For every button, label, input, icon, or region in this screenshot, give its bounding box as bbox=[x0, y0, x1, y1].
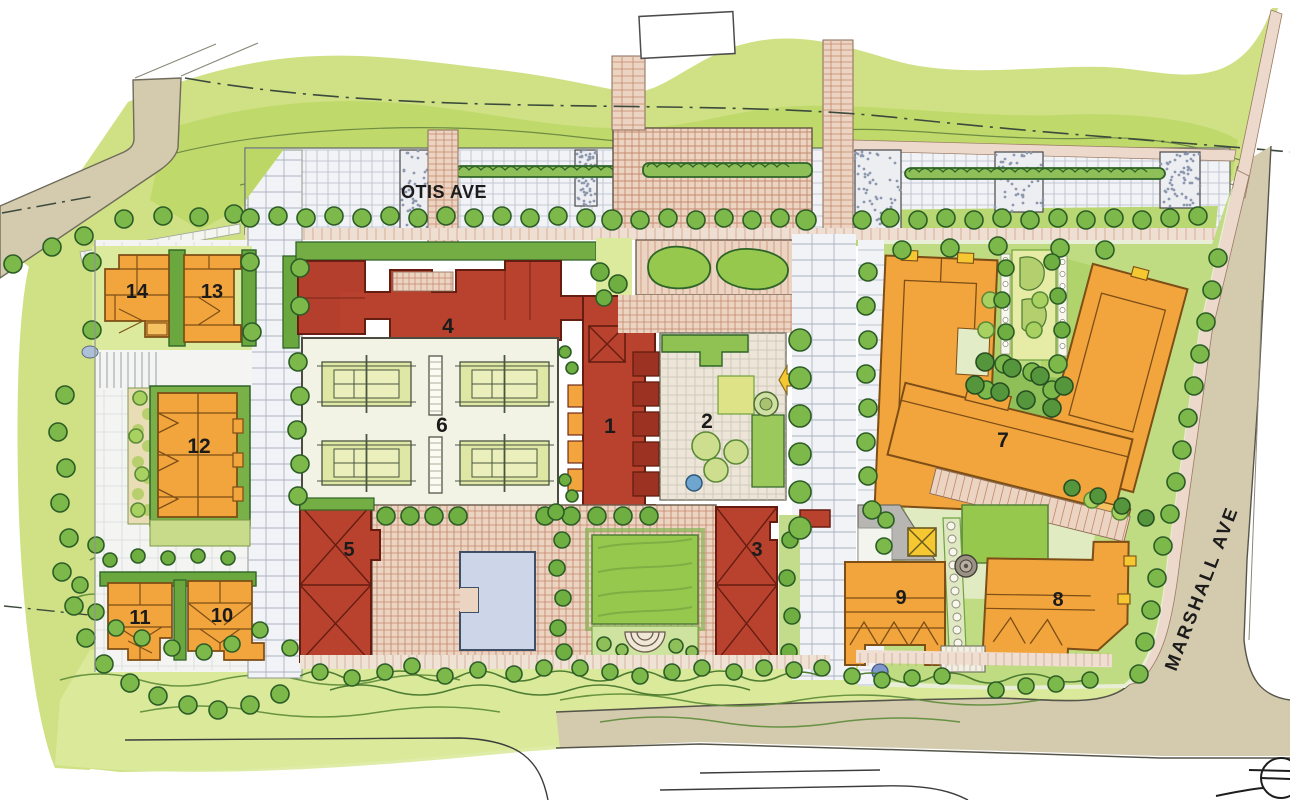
svg-text:12: 12 bbox=[187, 435, 210, 458]
svg-text:13: 13 bbox=[201, 281, 223, 303]
svg-text:14: 14 bbox=[126, 281, 149, 303]
svg-text:9: 9 bbox=[895, 587, 906, 609]
svg-text:OTIS AVE: OTIS AVE bbox=[401, 182, 487, 202]
svg-text:4: 4 bbox=[442, 315, 454, 338]
svg-text:8: 8 bbox=[1052, 589, 1063, 611]
svg-text:7: 7 bbox=[997, 429, 1009, 452]
svg-text:6: 6 bbox=[436, 414, 448, 437]
svg-text:2: 2 bbox=[701, 410, 713, 433]
svg-text:11: 11 bbox=[129, 607, 150, 629]
svg-text:3: 3 bbox=[751, 539, 762, 561]
svg-text:10: 10 bbox=[211, 605, 233, 627]
svg-text:1: 1 bbox=[604, 415, 616, 438]
svg-text:5: 5 bbox=[343, 539, 354, 561]
